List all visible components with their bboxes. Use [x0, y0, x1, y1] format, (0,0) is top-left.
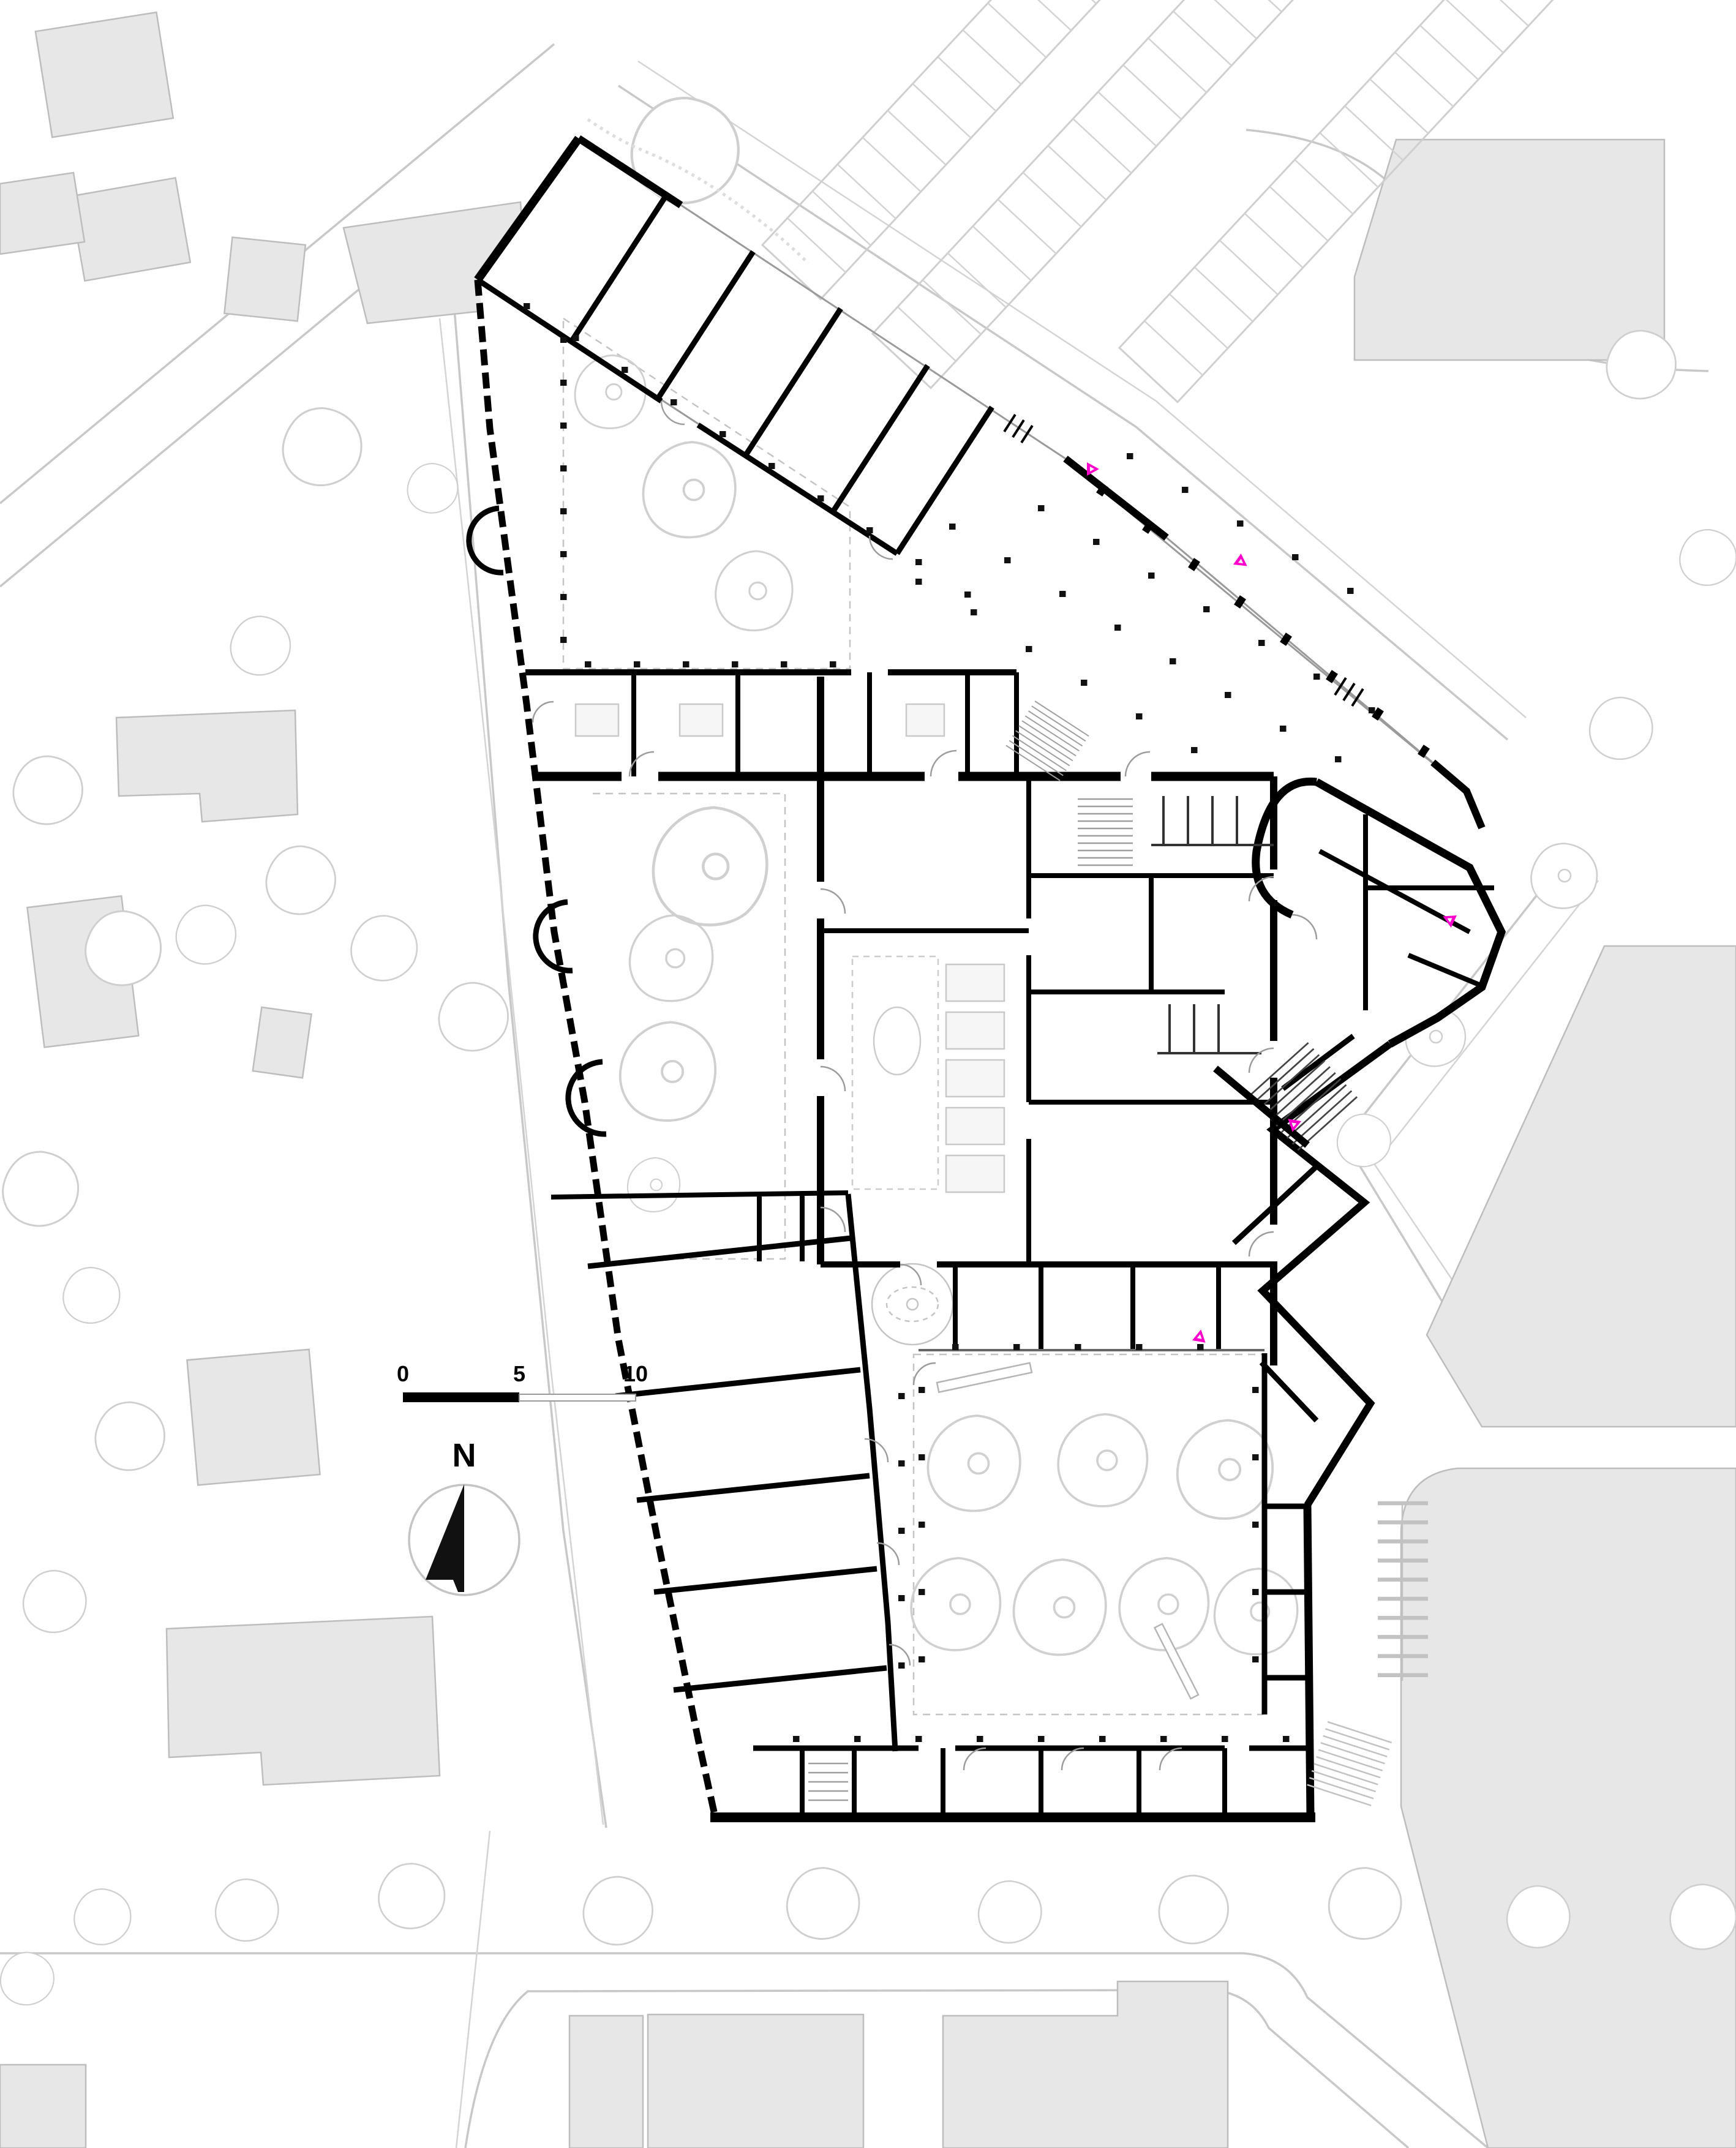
north-arrow: N [409, 1437, 519, 1595]
context-building [1401, 1468, 1736, 2148]
context-building [70, 178, 190, 280]
scale-label-5: 5 [513, 1361, 525, 1386]
context-building [187, 1350, 320, 1485]
context-building [253, 1007, 312, 1078]
scale-bar: 0 5 10 [397, 1361, 648, 1402]
context-building [167, 1617, 440, 1785]
context-building [36, 12, 173, 137]
context-building [0, 2065, 86, 2148]
context-building [569, 2016, 643, 2148]
context-building [1427, 946, 1736, 1427]
floor-plan-drawing: 0 5 10 N [0, 0, 1736, 2148]
context-building [116, 710, 298, 822]
site-plan-canvas: 0 5 10 N [0, 0, 1736, 2148]
scale-label-0: 0 [397, 1361, 409, 1386]
context-building [0, 173, 85, 254]
entrance-marker-icon [1233, 554, 1251, 571]
context-building [943, 1981, 1228, 2148]
school-building [469, 138, 1503, 1820]
north-label: N [453, 1437, 476, 1474]
entrance-marker-icon [1087, 462, 1099, 476]
context-building [1355, 140, 1664, 360]
scale-label-10: 10 [623, 1361, 648, 1386]
context-building [224, 238, 305, 321]
compass-needle [426, 1484, 464, 1592]
context-building [648, 2015, 863, 2148]
